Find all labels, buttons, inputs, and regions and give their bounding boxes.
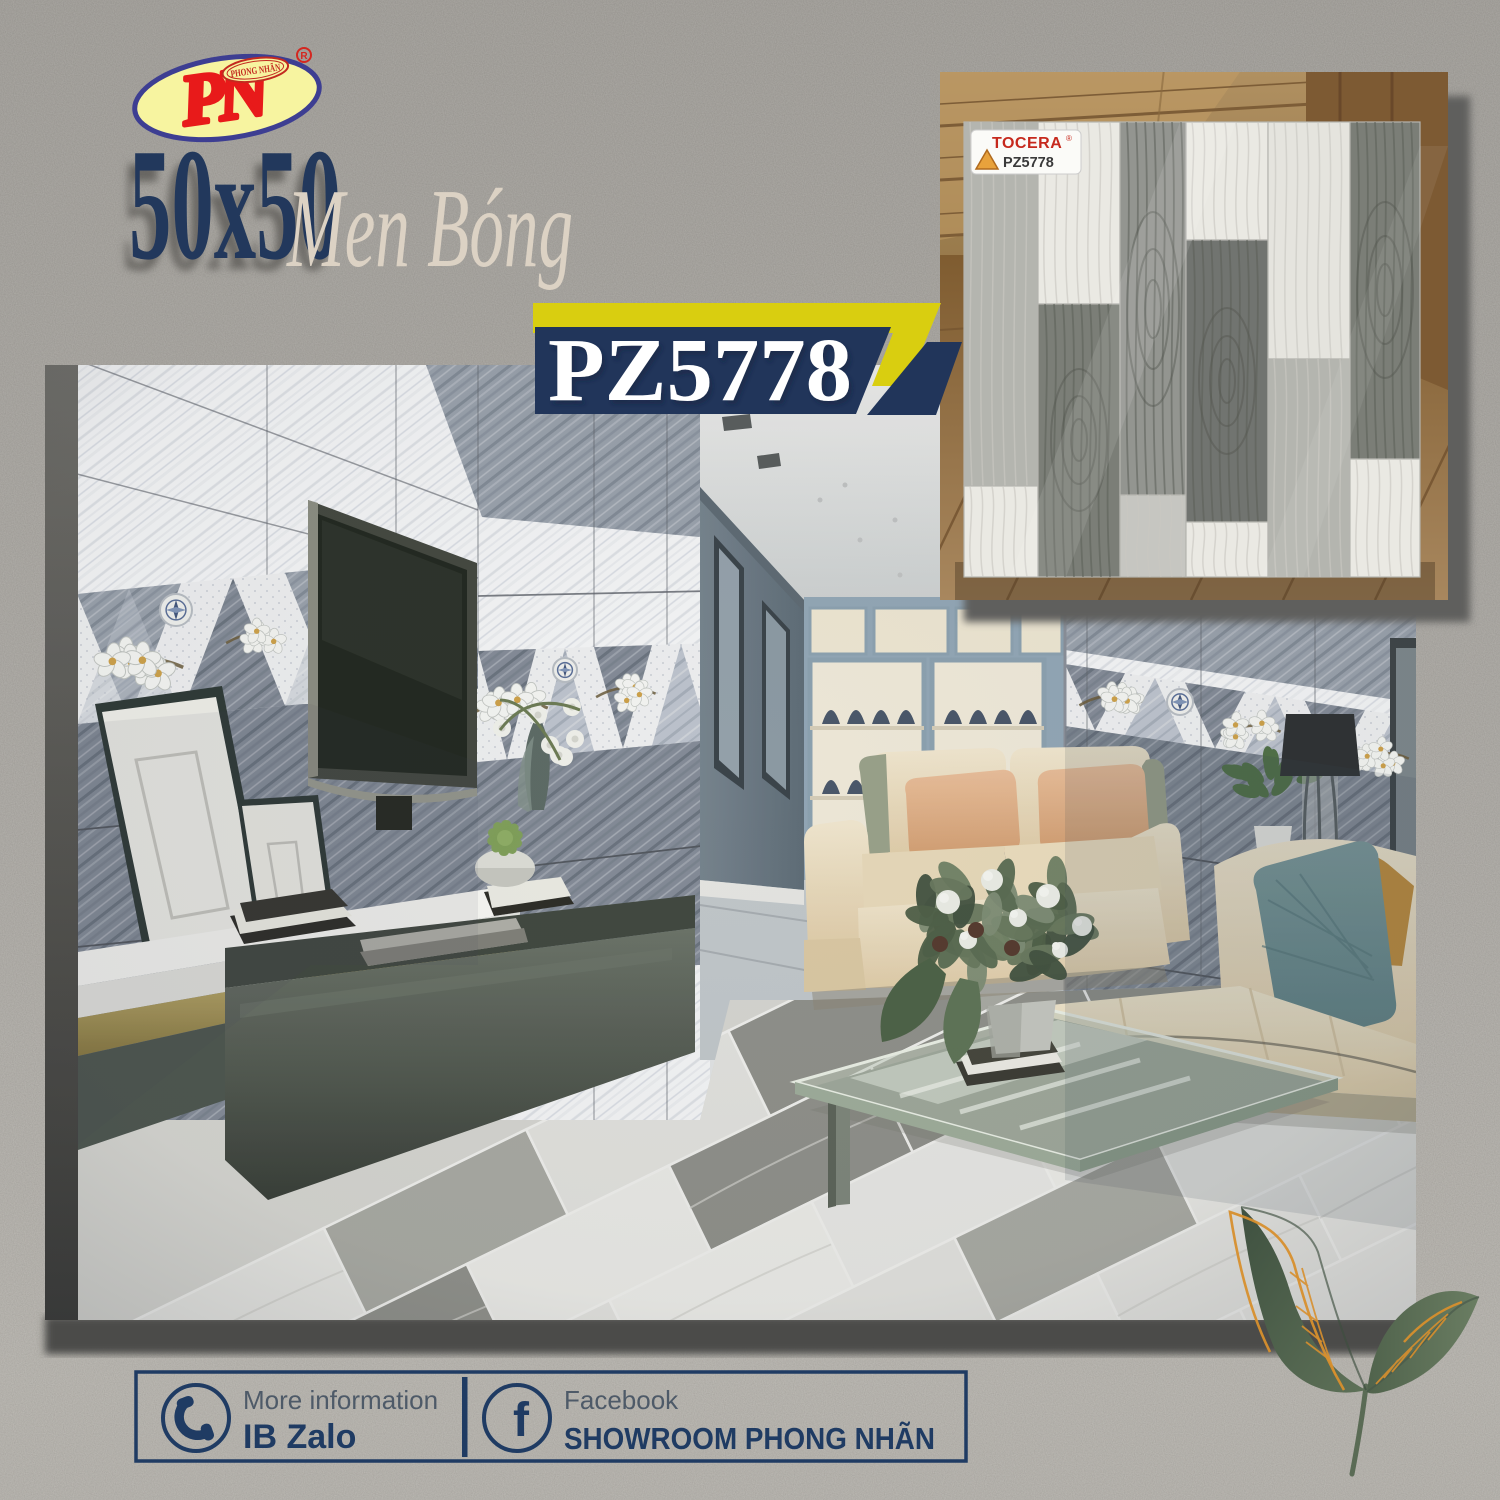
svg-text:®: ®: [1066, 134, 1072, 143]
svg-text:PZ5778: PZ5778: [1003, 155, 1054, 171]
svg-text:TOCERA: TOCERA: [992, 135, 1062, 152]
svg-text:IB Zalo: IB Zalo: [243, 1418, 356, 1456]
svg-text:PZ5778: PZ5778: [548, 321, 852, 420]
svg-text:SHOWROOM PHONG NHÃN: SHOWROOM PHONG NHÃN: [564, 1421, 935, 1456]
svg-text:Men Bóng: Men Bóng: [286, 167, 573, 291]
svg-text:f: f: [513, 1394, 530, 1447]
svg-text:R: R: [300, 51, 308, 62]
svg-text:Facebook: Facebook: [564, 1385, 679, 1415]
svg-text:More information: More information: [243, 1385, 438, 1415]
